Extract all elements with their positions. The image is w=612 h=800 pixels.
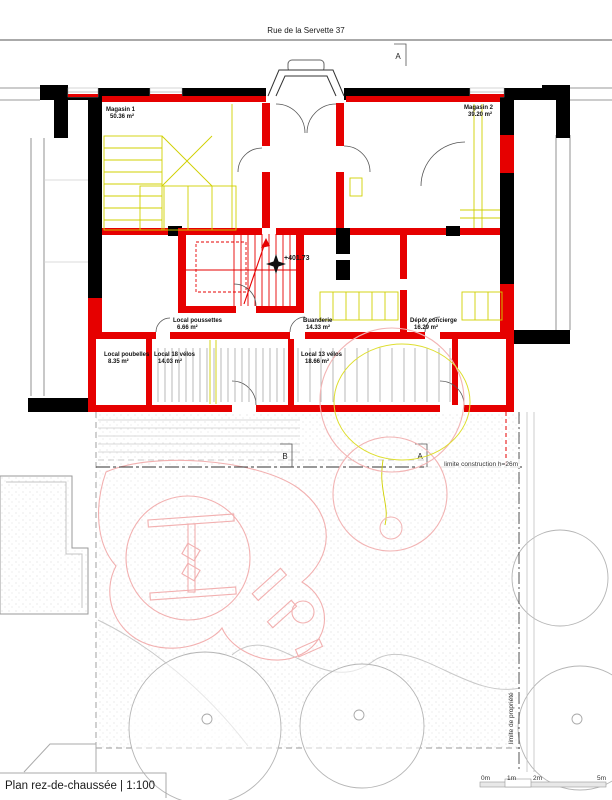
- scale-label-0: 0m: [481, 775, 490, 782]
- section-marker-a-garden-label: A: [417, 452, 423, 461]
- room-label-poussettes: Local poussettes: [173, 318, 223, 324]
- section-marker-b-label: B: [282, 452, 287, 461]
- floor-plan-sheet: limite construction h=26m limite de prop…: [0, 0, 612, 800]
- room-area-18velos: 14.03 m²: [158, 358, 182, 365]
- street-annotation: Rue de la Servette 37: [0, 26, 612, 40]
- room-area-buanderie: 14.33 m²: [306, 324, 330, 331]
- section-marker-a-top: A: [394, 44, 406, 66]
- room-label-13velos: Local 13 vélos: [301, 352, 343, 358]
- room-area-poussettes: 6.66 m²: [177, 324, 198, 331]
- property-limit-label: limite de propriété: [508, 692, 515, 744]
- room-label-magasin2: Magasin 2: [464, 105, 494, 111]
- room-label-magasin1: Magasin 1: [106, 107, 136, 113]
- section-marker-a-top-label: A: [395, 52, 401, 61]
- room-label-18velos: Local 18 vélos: [154, 352, 196, 358]
- construction-limit-label: limite construction h=26m: [444, 461, 518, 468]
- neighbor-building-outline: [0, 476, 88, 614]
- room-label-buanderie: Buanderie: [303, 318, 333, 324]
- room-label-poubelles: Local poubelles: [104, 352, 150, 358]
- scale-label-5: 5m: [597, 775, 606, 782]
- room-area-magasin1: 50.36 m²: [110, 113, 134, 120]
- new-walls: [68, 94, 514, 412]
- level-value: +401.73: [284, 255, 310, 262]
- room-area-poubelles: 8.35 m²: [108, 358, 129, 365]
- garden-ground: limite construction h=26m limite de prop…: [0, 412, 612, 800]
- street-label: Rue de la Servette 37: [267, 26, 345, 35]
- entrance-porch: [268, 60, 344, 96]
- scale-label-1: 1m: [507, 775, 516, 782]
- corner-shape: [24, 744, 96, 772]
- room-area-magasin2: 39.20 m²: [468, 111, 492, 118]
- room-area-depot: 16.29 m²: [414, 324, 438, 331]
- drawing-title: Plan rez-de-chaussée | 1:100: [5, 780, 155, 792]
- room-label-depot: Dépôt concierge: [410, 318, 458, 324]
- room-area-13velos: 18.66 m²: [305, 358, 329, 365]
- floor-plan-drawing: limite construction h=26m limite de prop…: [0, 0, 612, 800]
- stair-core: [186, 234, 296, 306]
- scale-label-2: 2m: [533, 775, 542, 782]
